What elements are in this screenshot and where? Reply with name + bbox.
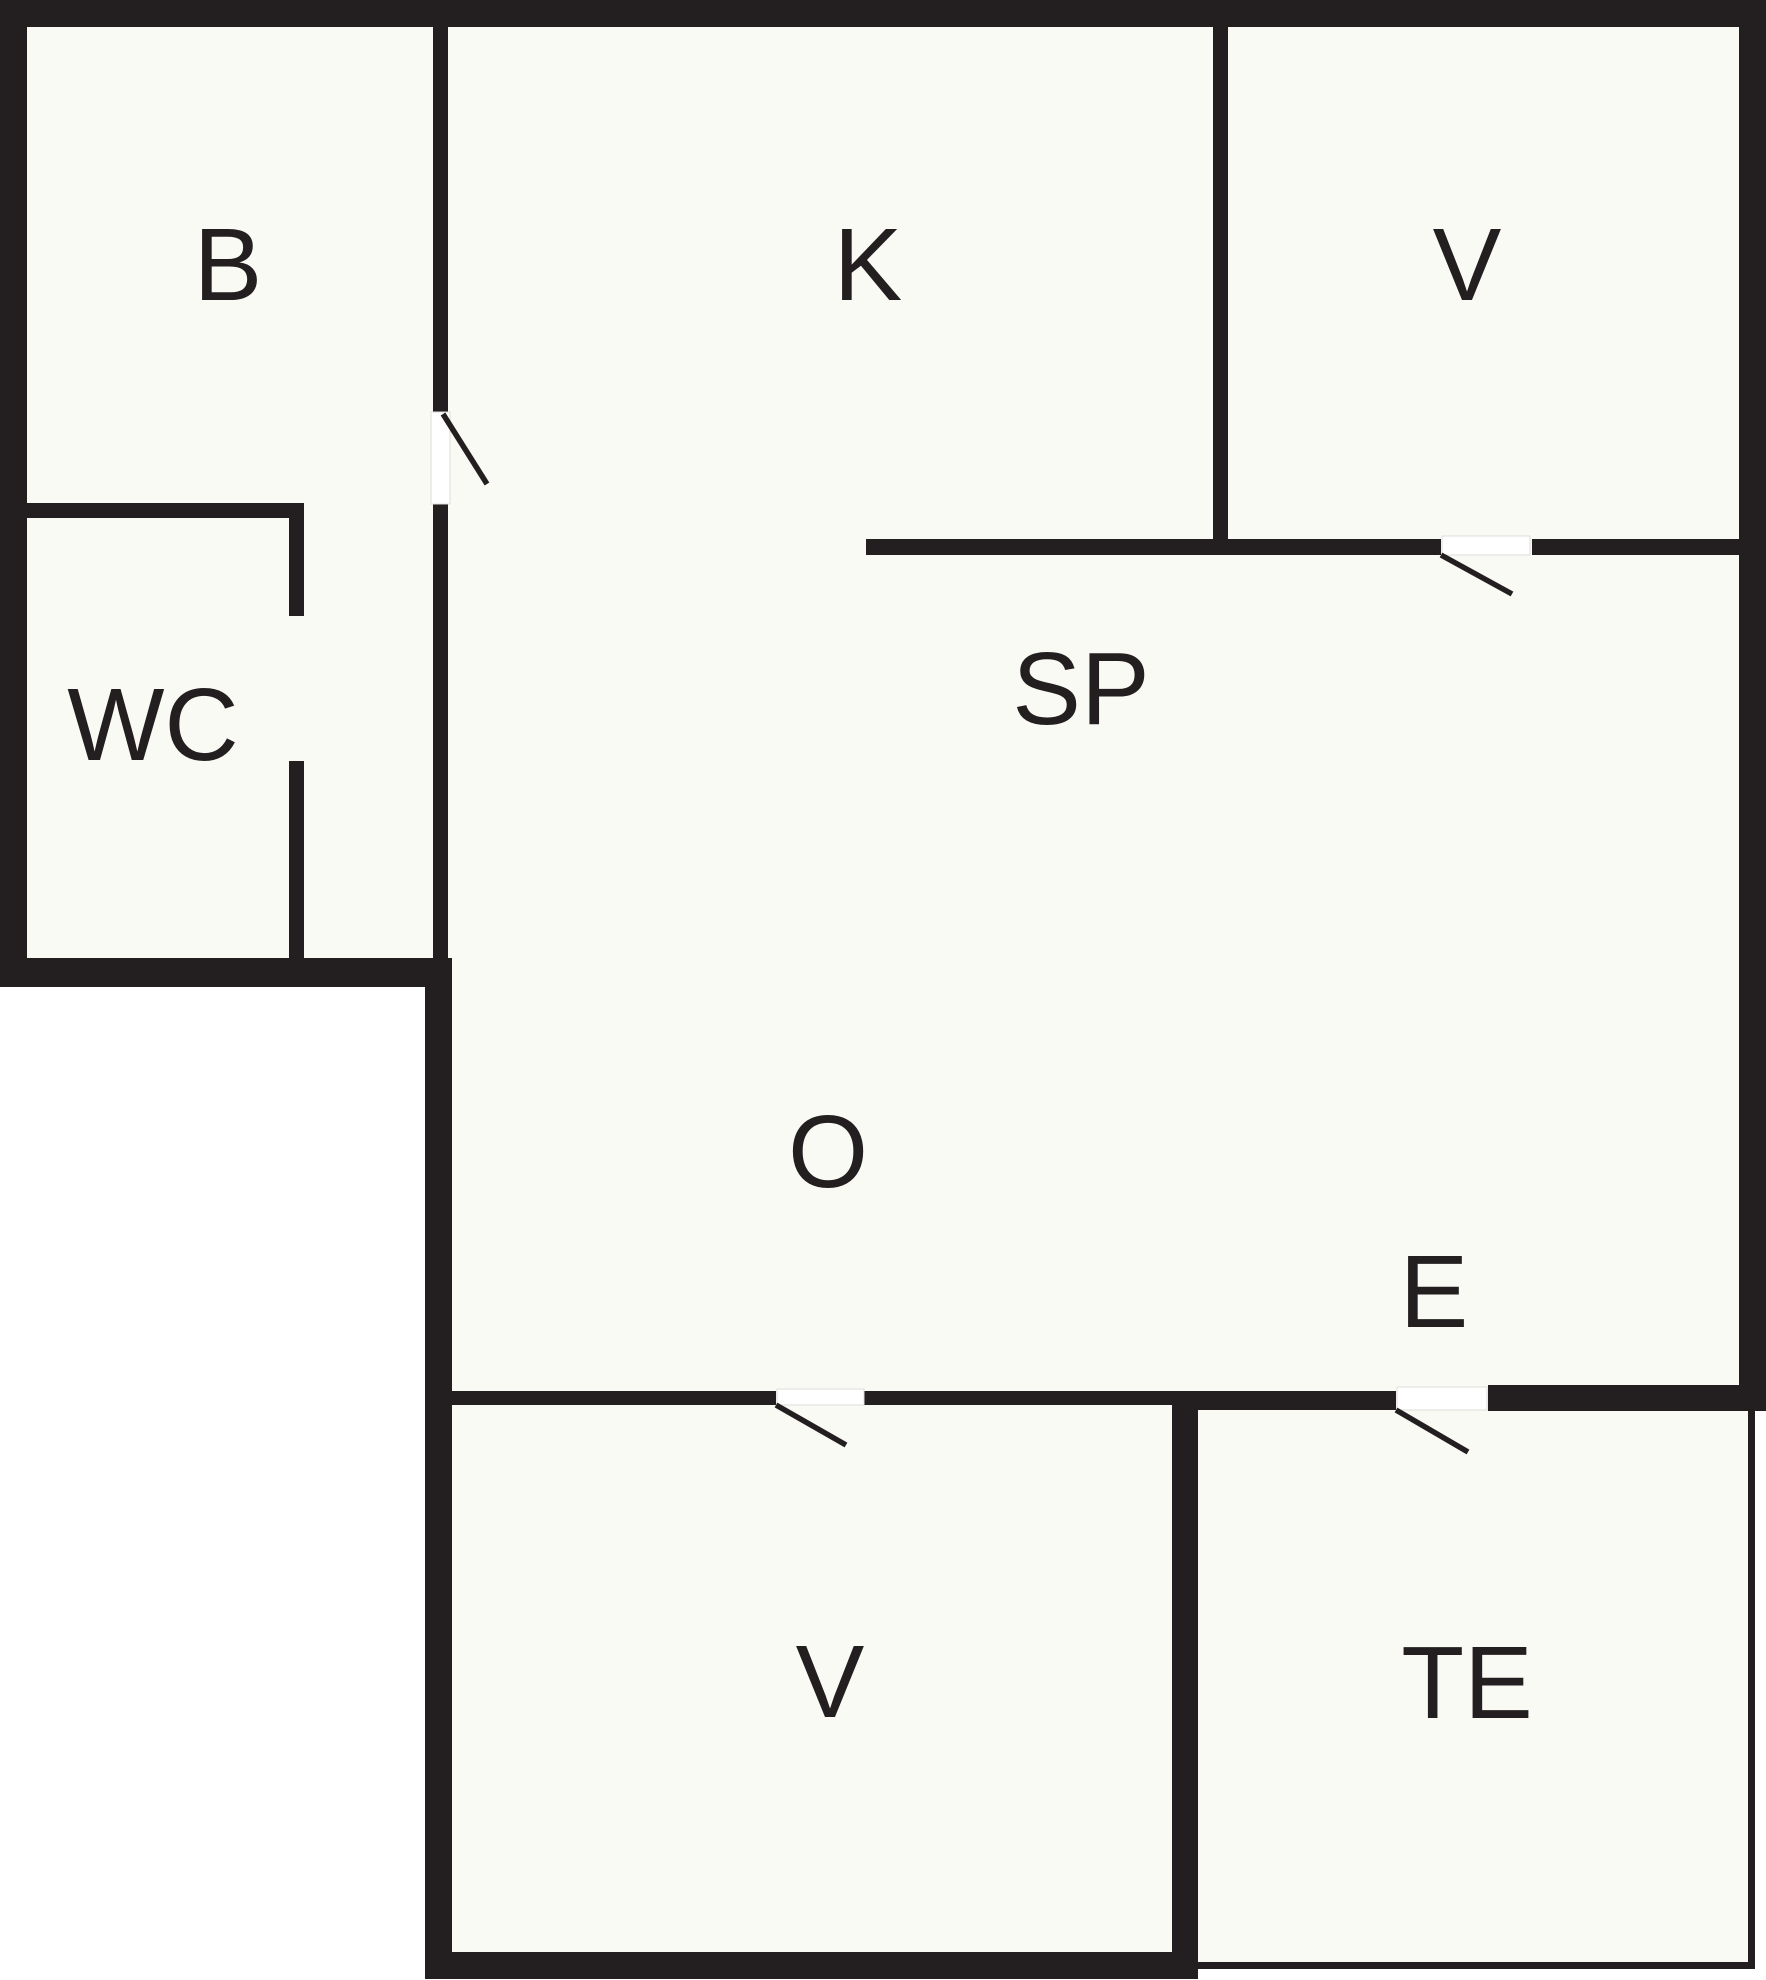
svg-text:V: V xyxy=(796,1624,865,1739)
svg-text:K: K xyxy=(834,207,903,322)
svg-text:O: O xyxy=(788,1094,868,1209)
svg-text:SP: SP xyxy=(1012,631,1149,746)
svg-text:V: V xyxy=(1433,207,1502,322)
svg-text:E: E xyxy=(1400,1234,1469,1349)
svg-text:B: B xyxy=(194,207,263,322)
svg-text:WC: WC xyxy=(67,667,239,782)
svg-text:TE: TE xyxy=(1401,1625,1533,1740)
